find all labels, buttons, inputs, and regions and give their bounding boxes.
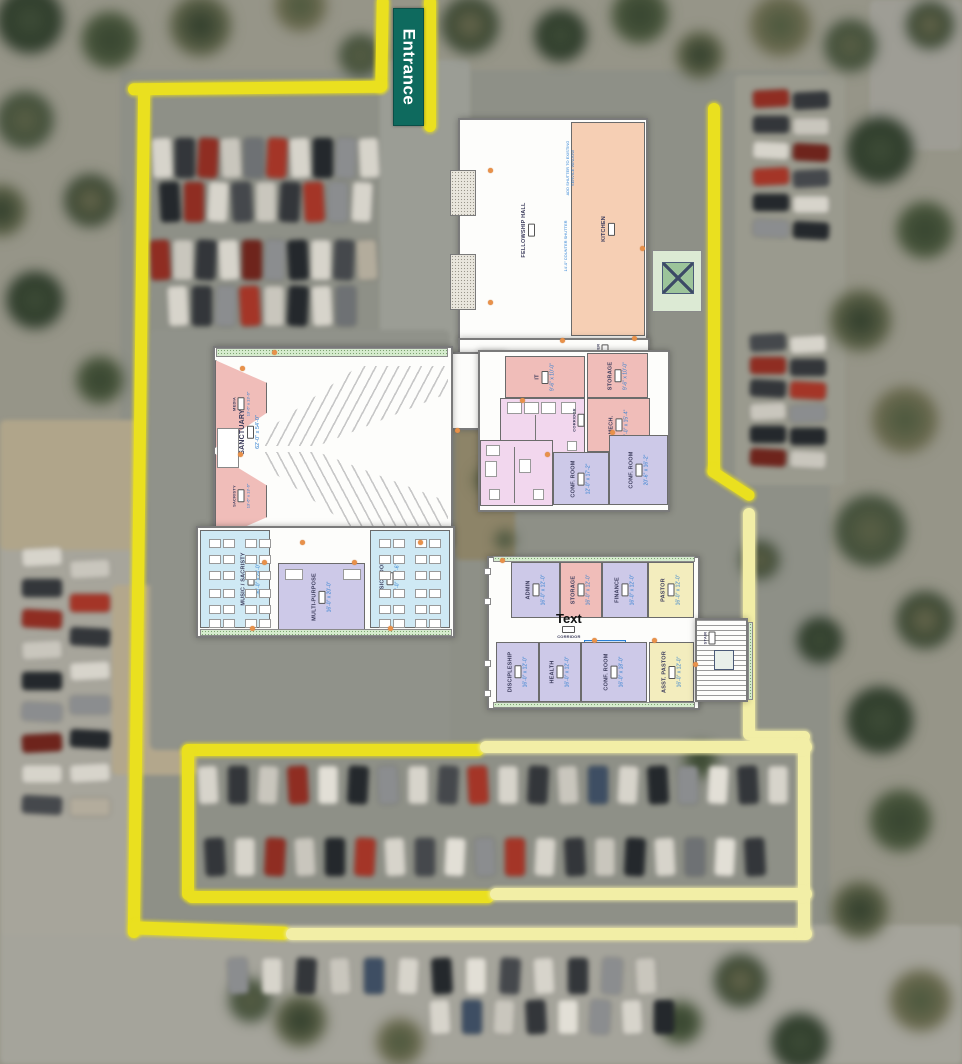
table (223, 589, 235, 598)
gazebo-structure (652, 250, 702, 312)
table (259, 589, 271, 598)
entrance-label: Entrance (399, 29, 419, 106)
gazebo-roof-icon (662, 262, 694, 294)
table (415, 555, 427, 564)
door-marker (545, 452, 550, 457)
table (415, 571, 427, 580)
table (245, 539, 257, 548)
floor-plan-overlay: KITCHEN FELLOWSHIP HALL ADD SHUTTER TO E… (0, 0, 962, 1064)
door-marker (693, 662, 698, 667)
table (209, 589, 221, 598)
porch-hatch (493, 702, 695, 708)
site-map-image: KITCHEN FELLOWSHIP HALL ADD SHUTTER TO E… (0, 0, 962, 1064)
column-symbol (484, 568, 491, 575)
porch-hatch (200, 629, 452, 636)
annotation-shutter: ADD SHUTTER TO EXISTING SERVICE WINDOW (566, 134, 576, 202)
building-stair: STAIR (695, 618, 748, 702)
table (259, 571, 271, 580)
door-marker (560, 338, 565, 343)
room-label: KITCHEN (601, 216, 607, 242)
door-marker (520, 398, 525, 403)
door-marker (300, 540, 305, 545)
door-marker (640, 246, 645, 251)
room-label-sanctuary: SANCTUARY62'-0" x 54'-0" (239, 409, 261, 455)
table (429, 589, 441, 598)
table (379, 571, 391, 580)
room-conf-a: CONF. ROOM12'-0" x 17'-2" (553, 452, 609, 505)
room-storage-south: STORAGE16'-0" x 12'-0" (560, 562, 602, 618)
door-marker (488, 168, 493, 173)
door-marker (250, 626, 255, 631)
table (209, 555, 221, 564)
table (209, 539, 221, 548)
table (415, 589, 427, 598)
room-label-fellowship: FELLOWSHIP HALL (521, 202, 535, 257)
table (209, 605, 221, 614)
door-marker (592, 638, 597, 643)
table (379, 539, 391, 548)
table (393, 571, 405, 580)
table (379, 555, 391, 564)
table (415, 619, 427, 628)
door-marker (610, 430, 615, 435)
table (415, 605, 427, 614)
table (393, 605, 405, 614)
table (393, 589, 405, 598)
room-health: HEALTH16'-0" x 12'-0" (539, 642, 581, 702)
room-admin: ADMIN16'-0" x 12'-0" (511, 562, 560, 618)
door-marker (500, 558, 505, 563)
table (429, 619, 441, 628)
table (259, 619, 271, 628)
room-multipurpose: MULTI-PURPOSE16'-0" x 20'-0" (278, 563, 365, 630)
entry-vestibule (450, 170, 476, 216)
table (245, 589, 257, 598)
chancel-platform (217, 428, 239, 468)
door-marker (238, 452, 243, 457)
door-marker (262, 560, 267, 565)
table (393, 539, 405, 548)
table (223, 555, 235, 564)
porch-hatch (216, 348, 448, 357)
entrance-sign: Entrance (393, 8, 424, 126)
table (259, 605, 271, 614)
door-marker (272, 350, 277, 355)
column-symbol (484, 598, 491, 605)
table (209, 619, 221, 628)
table (245, 605, 257, 614)
elevator-shaft-icon (714, 650, 734, 670)
table (393, 619, 405, 628)
table (223, 539, 235, 548)
room-storage-north: STORAGE9'-6" x 10'-0" (587, 353, 648, 398)
corridor-label: CORRIDOR (572, 408, 585, 431)
room-music-room: MUSIC ROOM30'-0" x 19'-6" (370, 530, 450, 628)
room-finance: FINANCE16'-0" x 12'-0" (602, 562, 648, 618)
table (379, 605, 391, 614)
column-symbol (484, 690, 491, 697)
room-pastor: PASTOR16'-0" x 12'-0" (648, 562, 694, 618)
table (429, 571, 441, 580)
table (209, 571, 221, 580)
door-marker (418, 540, 423, 545)
porch-hatch (748, 622, 753, 700)
door-marker (455, 428, 460, 433)
door-marker (632, 336, 637, 341)
room-number-chip (608, 223, 615, 236)
door-marker (388, 626, 393, 631)
room-conf-c: CONF. ROOM16'-0" x 18'-0" (581, 642, 647, 702)
door-marker (240, 366, 245, 371)
room-asst-pastor: ASST. PASTOR16'-0" x 12'-0" (649, 642, 694, 702)
room-it: IT9'-6" x 10'-0" (505, 356, 585, 398)
room-restrooms-lower (480, 440, 553, 506)
table (379, 589, 391, 598)
table (245, 571, 257, 580)
entry-vestibule (450, 254, 476, 310)
column-symbol (484, 660, 491, 667)
room-discipleship: DISCIPLESHIP16'-0" x 12'-0" (496, 642, 539, 702)
table (429, 539, 441, 548)
table (223, 571, 235, 580)
room-conf-b: CONF. ROOM20'-6" x 16'-2" (609, 435, 668, 505)
door-marker (352, 560, 357, 565)
door-marker (652, 638, 657, 643)
table (429, 605, 441, 614)
table (223, 619, 235, 628)
table (429, 555, 441, 564)
table (259, 539, 271, 548)
table (245, 555, 257, 564)
annotation-counter-shutter: 14'-0" COUNTER SHUTTER (564, 220, 569, 272)
table (223, 605, 235, 614)
text-artifact-label: Text CORRIDOR (556, 612, 582, 639)
table (393, 555, 405, 564)
room-music-sacristy: MUSIC / SACRISTY30'-0" x 24'-0" (200, 530, 270, 628)
room-kitchen: KITCHEN (571, 122, 645, 336)
door-marker (488, 300, 493, 305)
